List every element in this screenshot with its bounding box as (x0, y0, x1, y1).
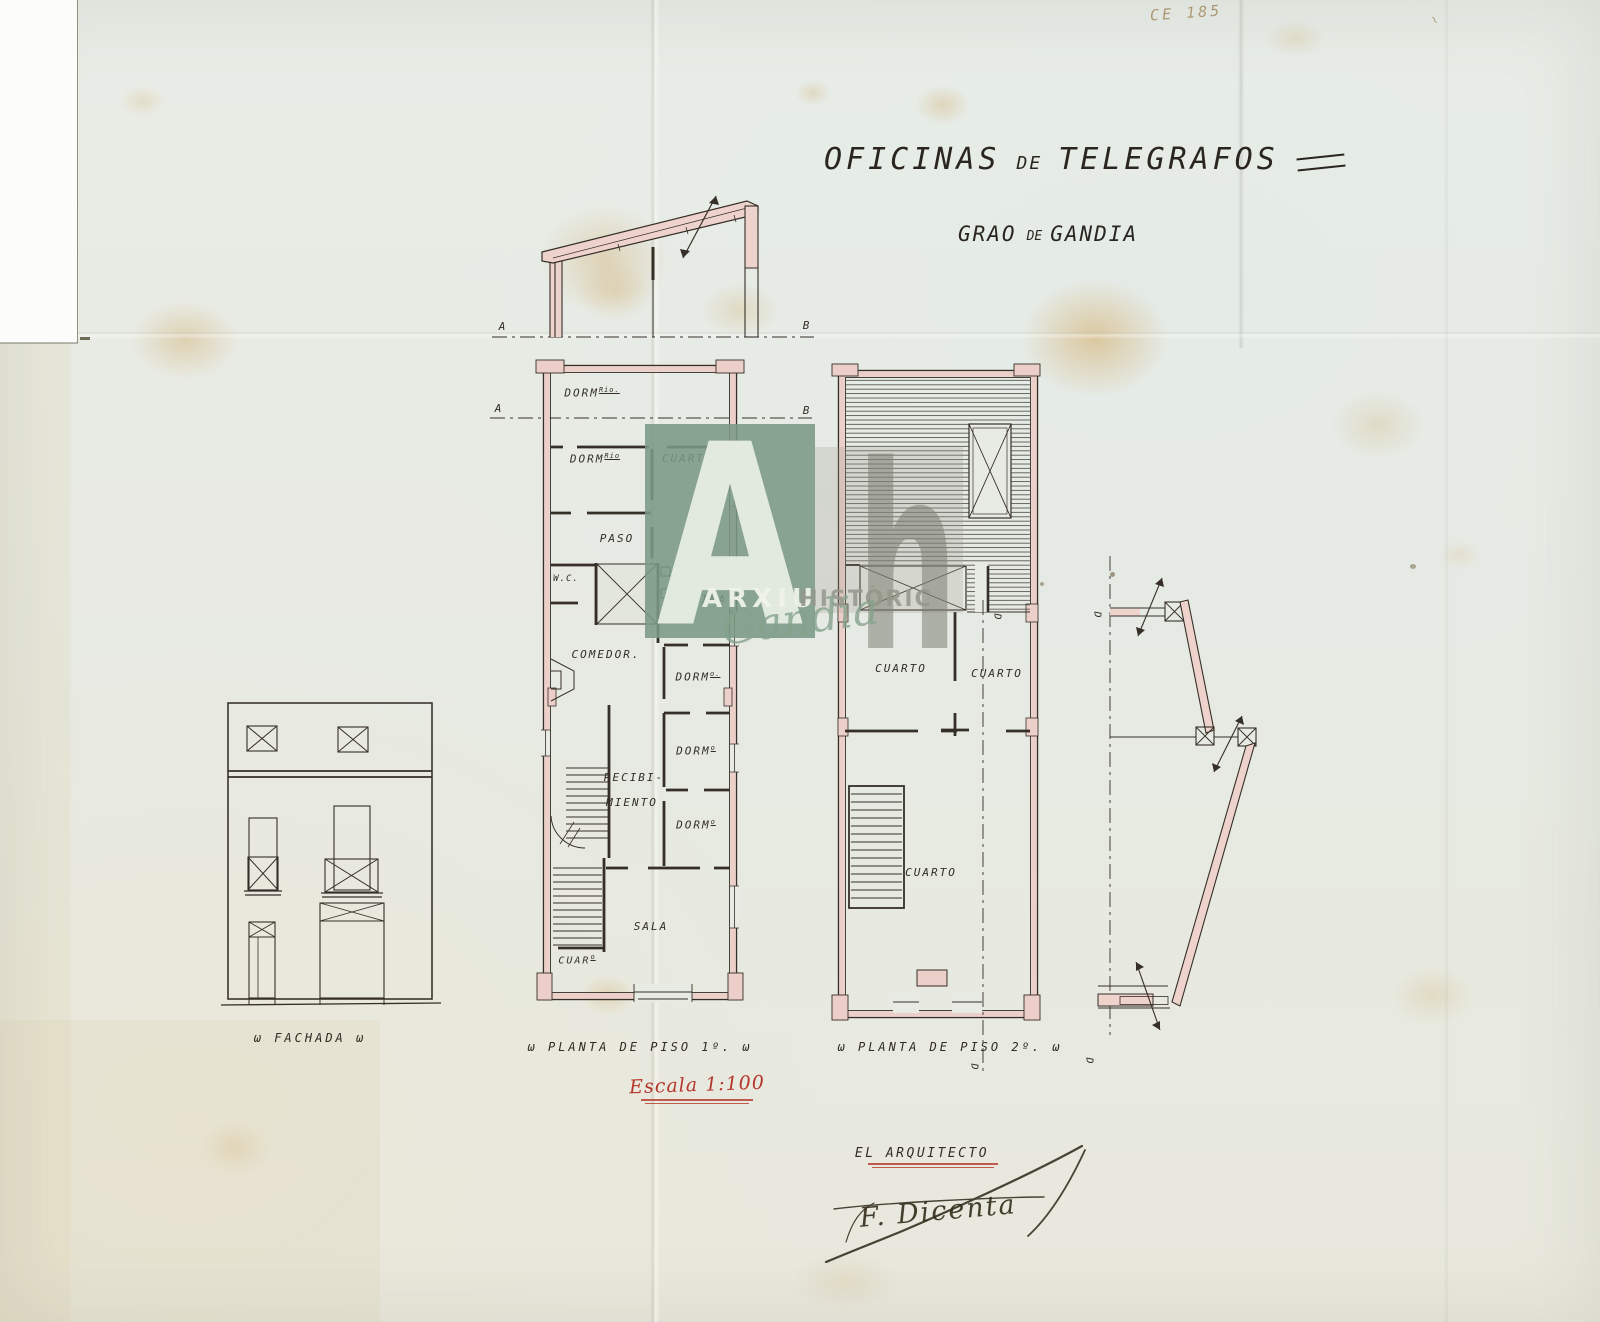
room-label-sup: Rio. (599, 386, 620, 394)
room-label-sup: o (711, 744, 716, 752)
blueprint-scan: CE 185 ~ OFICINAS DE TELEGRAFOS GRAO DE … (0, 0, 1600, 1322)
plan1-geometry (490, 360, 812, 1002)
sheet-edge-mark (80, 337, 90, 340)
room-label-cocina: COCINA (675, 593, 727, 606)
section-marker-d: D (969, 1063, 980, 1071)
section-marker-d: D (992, 613, 1003, 621)
section-marker-a: A (495, 402, 502, 415)
room-label-text: DORM (676, 671, 711, 684)
section-marker-d: D (1092, 611, 1103, 619)
drawing-title: OFICINAS DE TELEGRAFOS (824, 142, 1345, 177)
section-marker-b: B (803, 404, 810, 417)
roof-section-geometry (492, 196, 814, 337)
section-marker-b: B (803, 319, 810, 332)
room-label-cuarto: CUARTO (905, 866, 957, 879)
room-label-sup: o (590, 953, 595, 961)
room-label-sup: o. (710, 670, 720, 678)
architect-label: EL ARQUITECTO (855, 1146, 989, 1161)
scale-underline (641, 1099, 753, 1101)
facade-drawing (218, 698, 448, 1013)
room-label-recibimiento: MIENTO (606, 796, 658, 809)
room-label-text: DORM (676, 819, 711, 832)
section-marker-d: D (1084, 1057, 1095, 1065)
drawing-subtitle: GRAO DE GANDIA (958, 222, 1138, 246)
room-label-comedor: COMEDOR. (572, 648, 641, 661)
room-label-dormitorio: DORMo (676, 744, 716, 758)
roof-section-drawing (478, 190, 823, 350)
facade-caption: ω FACHADA ω (254, 1031, 366, 1045)
room-label-dormitorio: DORMo. (676, 670, 721, 684)
room-label-paso: PASO (600, 532, 635, 545)
room-label-cuarto: CUARTO. (662, 452, 722, 465)
room-label-dormitorio: DORMRio. (564, 386, 619, 400)
room-label-wc: W.C. (553, 574, 579, 584)
architect-underline (872, 1167, 994, 1168)
subtitle-word: GANDIA (1050, 222, 1138, 246)
subtitle-de: DE (1027, 229, 1043, 244)
section-marker-a: A (499, 320, 506, 333)
room-label-cuarto: CUARo (558, 953, 595, 966)
room-label-dormitorio: DORMRio (570, 452, 620, 466)
plan1-openings (541, 472, 739, 928)
scale-underline (645, 1103, 749, 1104)
room-label-text: DORM (676, 745, 711, 758)
room-label-sup: Rio (604, 452, 620, 460)
plan1-drawing (480, 355, 820, 1015)
room-label-sup: o (711, 818, 716, 826)
title-word: OFICINAS (824, 142, 1001, 177)
title-de: DE (1017, 153, 1043, 174)
subtitle-word: GRAO (958, 222, 1017, 246)
scan-backing-corner (0, 0, 78, 343)
roof-profile-geometry (1098, 556, 1256, 1035)
room-label-dormitorio: DORMo (676, 818, 716, 832)
plan2-geometry (832, 364, 1040, 1074)
room-label-cuarto: CUARTO (971, 667, 1023, 680)
title-flourish (1296, 154, 1345, 172)
room-label-recibimiento: RECIBI- (604, 771, 664, 784)
plan1-caption: ω PLANTA DE PISO 1º. ω (528, 1040, 753, 1054)
room-label-cuarto: CUARTO (875, 662, 927, 675)
room-label-text: DORM (564, 387, 599, 400)
plan2-caption: ω PLANTA DE PISO 2º. ω (838, 1040, 1063, 1054)
architect-underline (868, 1163, 998, 1165)
plan2-drawing (826, 358, 1052, 1078)
room-label-text: CUAR (558, 955, 590, 966)
sheet-edge (0, 342, 78, 344)
facade-geometry (221, 703, 441, 1005)
title-word: TELEGRAFOS (1058, 142, 1279, 177)
room-label-text: DORM (570, 453, 605, 466)
room-label-sala: SALA (634, 920, 669, 933)
